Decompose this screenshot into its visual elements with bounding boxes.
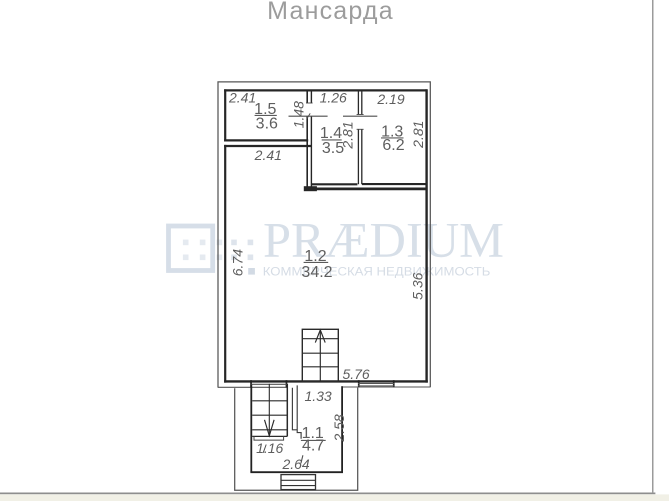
svg-text:1.48: 1.48 <box>290 101 306 128</box>
svg-text:6.2: 6.2 <box>382 137 404 154</box>
svg-text:34.2: 34.2 <box>301 264 332 281</box>
svg-text:2.19: 2.19 <box>376 91 404 107</box>
svg-text:1.16: 1.16 <box>256 440 283 456</box>
svg-text:4.7: 4.7 <box>302 437 324 454</box>
svg-text:2.58: 2.58 <box>331 414 347 442</box>
svg-text:2.81: 2.81 <box>410 121 426 149</box>
svg-text:1.33: 1.33 <box>304 388 331 404</box>
svg-text:1.26: 1.26 <box>320 90 347 106</box>
svg-text:2.41: 2.41 <box>228 89 256 105</box>
svg-text:6.74: 6.74 <box>230 249 246 276</box>
svg-text:Мансарда: Мансарда <box>267 0 394 25</box>
svg-text:PRÆDIUM: PRÆDIUM <box>263 211 504 267</box>
svg-text:3.6: 3.6 <box>256 116 278 133</box>
svg-text:2.64: 2.64 <box>281 456 309 472</box>
svg-text:КОММЕРЧЕСКАЯ НЕДВИЖИМОСТЬ: КОММЕРЧЕСКАЯ НЕДВИЖИМОСТЬ <box>263 264 491 278</box>
svg-text:2.41: 2.41 <box>254 147 282 163</box>
svg-text:5.76: 5.76 <box>342 366 369 382</box>
svg-text:5.36: 5.36 <box>409 272 425 299</box>
svg-text:2.81: 2.81 <box>340 121 356 149</box>
